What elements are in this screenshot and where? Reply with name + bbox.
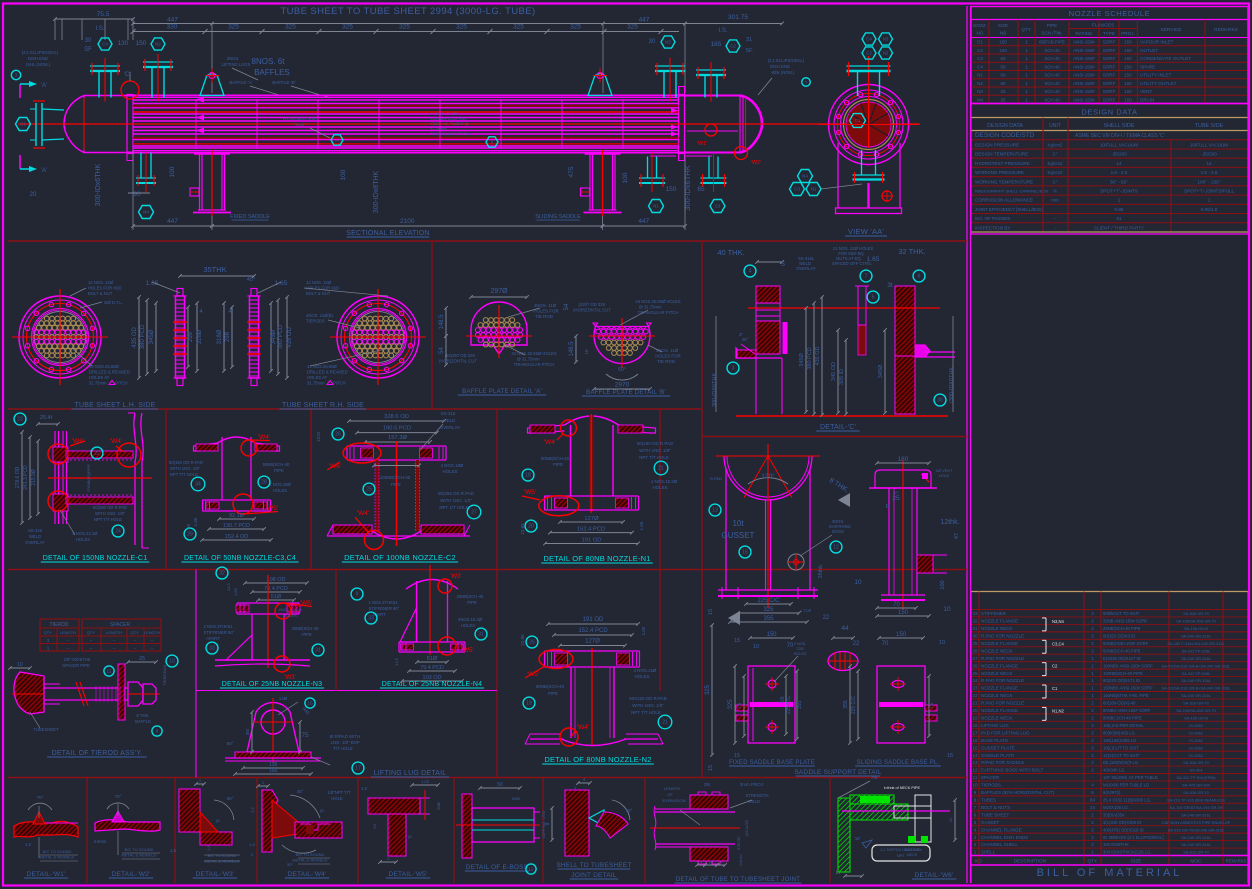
svg-text:BAFFLE-'B': BAFFLE-'B' — [272, 80, 295, 85]
svg-text:'A': 'A' — [41, 83, 47, 89]
svg-text:ANSI-150#: ANSI-150# — [1073, 81, 1095, 86]
svg-text:GASKET: GASKET — [981, 820, 1000, 825]
svg-text:TIERODS: TIERODS — [981, 783, 1001, 788]
svg-text:ID 350B IDX [2:1 ELLIPSOIDAL]: ID 350B IDX [2:1 ELLIPSOIDAL] — [1103, 835, 1164, 840]
svg-text:NO. OF PASSES: NO. OF PASSES — [975, 216, 1010, 221]
svg-text:VAPOUR INLET: VAPOUR INLET — [1140, 40, 1174, 45]
svg-text:HOLE: HOLE — [939, 474, 950, 478]
svg-text:100NB(SCH-40 PIPE: 100NB(SCH-40 PIPE — [1103, 671, 1143, 676]
svg-text:16(L)AS PER DETAIL: 16(L)AS PER DETAIL — [1103, 723, 1144, 728]
svg-text:PIPE: PIPE — [467, 600, 477, 605]
svg-text:30: 30 — [972, 634, 978, 639]
svg-text:20: 20 — [528, 524, 534, 530]
svg-text:DETAIL OF TUBE TO TUBESHEET JO: DETAIL OF TUBE TO TUBESHEET JOINT — [676, 876, 800, 883]
svg-text:OUTLET: OUTLET — [1140, 48, 1158, 53]
svg-text:QTY.: QTY. — [44, 630, 53, 635]
svg-text:'W4': 'W4' — [357, 510, 369, 517]
svg-text:4: 4 — [749, 269, 752, 275]
svg-text:UTILITY OUTLET: UTILITY OUTLET — [1140, 81, 1177, 86]
svg-text:C2: C2 — [977, 48, 983, 53]
svg-text:316Ø: 316Ø — [197, 329, 203, 344]
svg-text:TYPE: TYPE — [1103, 31, 1115, 36]
svg-text:10: 10 — [334, 138, 340, 143]
svg-text:C1: C1 — [855, 118, 861, 123]
svg-text:24: 24 — [972, 678, 978, 683]
svg-text:44 NOS.25.65Ø: 44 NOS.25.65Ø — [89, 364, 120, 369]
svg-text:HYDROTEST PRESSURE: HYDROTEST PRESSURE — [975, 161, 1030, 166]
svg-text:WORKING PRESSURE: WORKING PRESSURE — [975, 170, 1024, 175]
svg-text:150: 150 — [999, 40, 1007, 45]
svg-text:C2: C2 — [866, 51, 872, 56]
svg-text:SA-240 GR-316L: SA-240 GR-316L — [1181, 842, 1212, 847]
svg-text:25: 25 — [1000, 97, 1006, 102]
svg-text:DETAIL-'W1': DETAIL-'W1' — [27, 871, 66, 878]
svg-text:SA-312 TP 304 (ERW): SA-312 TP 304 (ERW) — [1176, 775, 1216, 780]
svg-text:R.PAD: R.PAD — [710, 476, 722, 481]
svg-text:80NB(SCH-40: 80NB(SCH-40 — [536, 684, 565, 689]
svg-text:100: 100 — [169, 166, 176, 177]
svg-text:SORF: SORF — [1103, 64, 1116, 69]
svg-text:CLIENT / THIRD PARTY: CLIENT / THIRD PARTY — [1094, 225, 1144, 230]
svg-text:DRILLED & REAMED: DRILLED & REAMED — [89, 370, 130, 375]
svg-text:20: 20 — [30, 192, 37, 198]
svg-text:'W4': 'W4' — [544, 439, 556, 446]
svg-text:1: 1 — [1025, 56, 1028, 61]
svg-text:DESIGN TEMPERATURE: DESIGN TEMPERATURE — [975, 152, 1028, 157]
svg-text:355: 355 — [763, 616, 774, 622]
svg-text:BAFFLE-'A': BAFFLE-'A' — [229, 80, 252, 85]
svg-text:6thk (NOM.): 6thk (NOM.) — [772, 70, 795, 75]
svg-text:TIEROD: TIEROD — [162, 670, 167, 685]
svg-text:1.25: 1.25 — [421, 779, 430, 784]
svg-text:14.5: 14.5 — [394, 657, 399, 666]
svg-text:22: 22 — [94, 451, 100, 457]
svg-text:PIPE: PIPE — [548, 691, 558, 696]
svg-text:ANSI-150#: ANSI-150# — [1073, 89, 1095, 94]
svg-text:OVERLAY: OVERLAY — [796, 266, 816, 271]
svg-text:HOLE: HOLE — [331, 796, 343, 801]
svg-text:SA-105/SA-516 GR-70: SA-105/SA-516 GR-70 — [1176, 619, 1216, 624]
svg-text:NOZZ.: NOZZ. — [973, 23, 987, 28]
svg-text:WORKING TEMPERATURE: WORKING TEMPERATURE — [975, 179, 1033, 184]
svg-text:30: 30 — [85, 38, 92, 44]
svg-text:2 NOS.: 2 NOS. — [794, 642, 806, 646]
svg-text:17: 17 — [355, 766, 361, 772]
svg-text:SA-240 GR-316L: SA-240 GR-316L — [1181, 678, 1212, 683]
svg-text:447: 447 — [638, 218, 649, 225]
svg-text:STIFFENER 90°: STIFFENER 90° — [369, 606, 400, 611]
svg-text:4NOS.15.3Ø: 4NOS.15.3Ø — [458, 617, 483, 622]
svg-text:SPOT+'T'-JOINTS/FULL: SPOT+'T'-JOINTS/FULL — [1184, 188, 1235, 193]
svg-text:PIPE: PIPE — [302, 632, 312, 637]
svg-text:WITH 1NO. 1/2": WITH 1NO. 1/2" — [440, 498, 472, 503]
svg-text:'W4': 'W4' — [110, 438, 122, 445]
svg-text:475: 475 — [568, 166, 575, 177]
svg-text:75: 75 — [301, 732, 309, 739]
svg-text:10: 10 — [753, 644, 759, 650]
svg-text:16: 16 — [307, 701, 313, 707]
svg-text:13: 13 — [972, 760, 978, 765]
svg-text:300-IDx6THK: 300-IDx6THK — [95, 163, 102, 206]
svg-text:C4: C4 — [102, 42, 108, 47]
svg-text:225 C/C: 225 C/C — [786, 695, 792, 714]
svg-text:8: 8 — [156, 729, 159, 735]
svg-text:SA-105/SA-516 GR-70: SA-105/SA-516 GR-70 — [1176, 708, 1216, 713]
svg-text:BOLT & NUT: BOLT & NUT — [88, 291, 113, 296]
svg-text:HYDROBOLTS/SE: HYDROBOLTS/SE — [283, 116, 317, 121]
svg-text:152.4 OD: 152.4 OD — [225, 534, 249, 540]
svg-text:325: 325 — [627, 24, 638, 31]
svg-text:8NOS. 6t: 8NOS. 6t — [252, 57, 286, 66]
svg-text:130: 130 — [118, 40, 129, 47]
svg-text:24: 24 — [1090, 805, 1096, 810]
svg-text:1: 1 — [1025, 89, 1028, 94]
svg-text:3: 3 — [720, 860, 722, 864]
svg-text:80: 80 — [1000, 81, 1006, 86]
svg-text:1: 1 — [1025, 48, 1028, 53]
svg-text:150: 150 — [898, 610, 909, 616]
svg-text:15: 15 — [972, 745, 978, 750]
svg-text:CAF NON ASBESTOS PIPE ENVELOP: CAF NON ASBESTOS PIPE ENVELOP — [1162, 820, 1231, 825]
svg-text:WITH 1NO. 1/8": WITH 1NO. 1/8" — [95, 511, 126, 516]
svg-text:215.9Ø: 215.9Ø — [31, 469, 37, 486]
svg-text:HOLES FOR: HOLES FOR — [533, 309, 558, 314]
svg-text:(HOR)ZONTAL CUT: (HOR)ZONTAL CUT — [439, 359, 477, 364]
svg-text:2 NOS.3THK51: 2 NOS.3THK51 — [203, 624, 233, 629]
svg-text:90: 90 — [133, 191, 141, 198]
svg-text:TIEROD: TIEROD — [50, 622, 69, 628]
svg-text:150: 150 — [1124, 40, 1132, 45]
svg-text:16thk.: 16thk. — [818, 563, 824, 578]
svg-text:80(258 OD R.PAD: 80(258 OD R.PAD — [438, 491, 474, 496]
svg-text:'W5': 'W5' — [266, 505, 278, 512]
svg-text:SHELL SIDE: SHELL SIDE — [1104, 123, 1135, 129]
svg-text:TUBE SHEET R.H. SIDE: TUBE SHEET R.H. SIDE — [282, 402, 364, 409]
svg-text:SCH./Thk.: SCH./Thk. — [1041, 31, 1062, 36]
svg-text:'W5': 'W5' — [524, 489, 536, 496]
svg-text:10t: 10t — [732, 519, 744, 528]
svg-text:N3: N3 — [883, 37, 889, 42]
svg-text:18: 18 — [972, 723, 978, 728]
svg-text:HOLES: HOLES — [273, 488, 287, 493]
svg-text:VIEW 'AA': VIEW 'AA' — [848, 227, 884, 236]
svg-text:1.5: 1.5 — [170, 848, 176, 853]
svg-text:R.PAD FOR NOZZLE: R.PAD FOR NOZZLE — [981, 656, 1024, 661]
svg-text:380 PCD: 380 PCD — [807, 347, 813, 369]
svg-text:51Ø: 51Ø — [271, 594, 282, 600]
svg-text:1: 1 — [1025, 73, 1028, 78]
svg-text:OVERLAY: OVERLAY — [25, 540, 45, 545]
svg-text:SA-516 GR-70: SA-516 GR-70 — [1183, 790, 1209, 795]
svg-text:SADDLE SUPPORT DETAIL: SADDLE SUPPORT DETAIL — [794, 769, 881, 776]
svg-text:HOLES FOR M20: HOLES FOR M20 — [88, 286, 122, 291]
svg-text:225 C/C: 225 C/C — [757, 598, 780, 604]
svg-text:DETAIL OF 150NB NOZZLE-C1: DETAIL OF 150NB NOZZLE-C1 — [43, 555, 148, 562]
svg-text:SA-182 F-316L/SA-240 GR-316L: SA-182 F-316L/SA-240 GR-316L — [1167, 641, 1225, 646]
svg-text:NO: NO — [977, 31, 984, 36]
svg-text:(2:1 ELLIPSOIDAL): (2:1 ELLIPSOIDAL) — [768, 58, 805, 63]
svg-text:10: 10 — [943, 606, 951, 613]
svg-text:STRENGTH: STRENGTH — [745, 793, 768, 798]
svg-text:DETAIL OF 50NB NOZZLE-C3,C4: DETAIL OF 50NB NOZZLE-C3,C4 — [184, 555, 296, 562]
svg-text:SF: SF — [745, 48, 753, 54]
svg-text:26: 26 — [972, 663, 978, 668]
svg-text:0.05 OD: 0.05 OD — [737, 836, 741, 850]
svg-text:1/8"NPT T/T: 1/8"NPT T/T — [328, 790, 351, 795]
svg-text:447: 447 — [167, 218, 178, 225]
svg-text:AØ VENT: AØ VENT — [936, 469, 953, 473]
svg-text:C2: C2 — [1052, 664, 1058, 669]
svg-text:33: 33 — [368, 616, 374, 622]
svg-text:0.85/1.0: 0.85/1.0 — [1201, 207, 1218, 212]
svg-text:31: 31 — [315, 648, 321, 654]
svg-text:C2: C2 — [730, 44, 736, 49]
svg-text:RADIOGRAPHY SHELL-CHANNEL/BOX: RADIOGRAPHY SHELL-CHANNEL/BOX — [975, 188, 1049, 193]
svg-text:SA-516 GR-70: SA-516 GR-70 — [1183, 760, 1209, 765]
svg-text:SA-106 GR-B: SA-106 GR-B — [1184, 626, 1208, 631]
svg-text:1: 1 — [1118, 198, 1121, 203]
svg-text:355: 355 — [797, 701, 803, 710]
svg-text:4 NOS.15Ø: 4 NOS.15Ø — [634, 668, 657, 673]
svg-text:21: 21 — [662, 720, 668, 726]
svg-text:12 NOS. 22Ø: 12 NOS. 22Ø — [306, 280, 332, 285]
svg-text:SF: SF — [84, 47, 92, 53]
svg-text:2970: 2970 — [615, 382, 630, 389]
svg-text:1: 1 — [1025, 40, 1028, 45]
svg-text:168: 168 — [269, 768, 278, 774]
svg-text:HOLES: HOLES — [283, 613, 297, 618]
svg-text:16: 16 — [972, 738, 978, 743]
svg-text:SYMB(60)PIPE: SYMB(60)PIPE — [86, 464, 91, 492]
svg-text:22Ø: 22Ø — [796, 647, 803, 651]
svg-text:10t: 10t — [162, 664, 167, 670]
svg-text:LIFTING LUG: LIFTING LUG — [981, 723, 1009, 728]
svg-text:325: 325 — [228, 24, 239, 31]
svg-text:TUBESHEET: TUBESHEET — [33, 727, 59, 732]
svg-text:345Ø: 345Ø — [799, 353, 805, 367]
svg-text:11: 11 — [106, 669, 111, 675]
svg-text:18: 18 — [525, 473, 531, 479]
svg-text:TRIANGULAR PITCH: TRIANGULAR PITCH — [514, 362, 555, 367]
svg-text:WITH 1NO. 1/8": WITH 1NO. 1/8" — [632, 703, 664, 708]
svg-text:DETAIL OF 80NB NOZZLE-N1: DETAIL OF 80NB NOZZLE-N1 — [543, 554, 650, 563]
svg-text:DESCRIPTION: DESCRIPTION — [1014, 859, 1047, 865]
svg-text:PIPE: PIPE — [553, 462, 563, 467]
svg-text:SA-479 GR-304: SA-479 GR-304 — [1182, 783, 1211, 788]
svg-text:NPT T/T HOLE: NPT T/T HOLE — [631, 710, 661, 715]
svg-text:M10X06 PER TABLE LG.: M10X06 PER TABLE LG. — [1103, 783, 1150, 788]
svg-text:14.5: 14.5 — [226, 582, 231, 591]
svg-text:REMARKS: REMARKS — [1226, 859, 1247, 864]
svg-text:INSPECTION BY: INSPECTION BY — [975, 225, 1010, 230]
svg-text:SORF: SORF — [1103, 97, 1116, 102]
svg-text:EXPANSION: EXPANSION — [662, 798, 685, 803]
svg-text:SS-304: SS-304 — [1190, 768, 1204, 773]
svg-text:PIPE: PIPE — [391, 482, 401, 487]
svg-text:DRILLED & REAMED: DRILLED & REAMED — [307, 370, 348, 375]
svg-text:26: 26 — [529, 640, 535, 646]
svg-text:VENT: VENT — [1140, 89, 1152, 94]
svg-text:UNIT: UNIT — [1049, 123, 1061, 129]
svg-text:SA-213 TP-316 (6M) SEAMLESS: SA-213 TP-316 (6M) SEAMLESS — [1167, 798, 1225, 803]
svg-text:DISH END: DISH END — [770, 64, 790, 69]
svg-text:SHELL: SHELL — [981, 850, 996, 855]
svg-text:150: 150 — [136, 40, 147, 47]
svg-text:SCH.40: SCH.40 — [1044, 56, 1060, 61]
svg-text:C3: C3 — [794, 187, 800, 192]
svg-text:60(190-OD R.PAD: 60(190-OD R.PAD — [637, 441, 673, 446]
svg-text:B/C TO SOUND: B/C TO SOUND — [296, 852, 325, 857]
svg-text:DISH END: DISH END — [28, 56, 48, 61]
svg-text:45°: 45° — [247, 277, 255, 283]
svg-text:10: 10 — [939, 640, 945, 646]
svg-text:24: 24 — [115, 529, 121, 535]
svg-text:t=thnk of NECK PIPE: t=thnk of NECK PIPE — [884, 786, 920, 790]
svg-text:127Ø: 127Ø — [585, 639, 600, 645]
svg-text:80: 80 — [1000, 73, 1006, 78]
svg-text:31: 31 — [478, 632, 484, 638]
svg-text:84: 84 — [1090, 798, 1096, 803]
svg-text:32: 32 — [219, 571, 225, 577]
svg-text:1.65: 1.65 — [233, 587, 238, 596]
svg-text:325: 325 — [763, 607, 774, 613]
svg-text:N3: N3 — [977, 89, 983, 94]
svg-text:R/PAD FOR SADDLE: R/PAD FOR SADDLE — [981, 760, 1024, 765]
svg-text:SPACER: SPACER — [981, 775, 1000, 780]
svg-text:TUBE SHEET L.H. SIDE: TUBE SHEET L.H. SIDE — [75, 402, 156, 409]
svg-text:5: 5 — [872, 295, 875, 301]
svg-text:C1: C1 — [977, 40, 983, 45]
svg-text:NOZZLE FLANGE: NOZZLE FLANGE — [981, 708, 1018, 713]
svg-text:Kg/cm2: Kg/cm2 — [1048, 161, 1063, 166]
svg-text:1: 1 — [1025, 97, 1028, 102]
svg-text:(D: (D — [320, 808, 324, 813]
svg-text:SA-106 GR-B: SA-106 GR-B — [1184, 716, 1208, 721]
svg-text:NOZZLE FLANGE: NOZZLE FLANGE — [981, 686, 1018, 691]
svg-text:70°: 70° — [37, 795, 44, 800]
svg-text:70: 70 — [882, 641, 889, 647]
svg-text:NOZZLE NECK: NOZZLE NECK — [981, 671, 1013, 676]
svg-text:4 NOS.19Ø: 4 NOS.19Ø — [441, 463, 464, 468]
svg-text:HOLES: HOLES — [461, 623, 475, 628]
svg-text:M30: M30 — [512, 796, 521, 801]
svg-text:SA-516 GR-70/SA-240 GR-316L: SA-516 GR-70/SA-240 GR-316L — [1168, 827, 1225, 832]
svg-text:@ 31.75mm: @ 31.75mm — [517, 357, 540, 362]
svg-text:297Ø: 297Ø — [490, 288, 508, 295]
svg-text:325: 325 — [399, 24, 410, 31]
svg-text:6: 6 — [918, 274, 921, 280]
svg-text:mm: mm — [1051, 198, 1059, 203]
svg-text:C3: C3 — [977, 56, 983, 61]
svg-text:14: 14 — [972, 753, 978, 758]
svg-text:TIE ROD: TIE ROD — [657, 359, 675, 364]
svg-text:100: 100 — [999, 48, 1007, 53]
svg-text:(SHL (NOM.): (SHL (NOM.) — [26, 62, 51, 67]
svg-text:DESIGN DATA: DESIGN DATA — [1081, 108, 1137, 117]
svg-text:190.5 PCD: 190.5 PCD — [383, 426, 411, 432]
svg-text:7: 7 — [865, 274, 868, 280]
svg-text:B/C TO SOUND: B/C TO SOUND — [125, 847, 154, 852]
svg-text:22: 22 — [972, 693, 978, 698]
svg-text:60°: 60° — [618, 367, 626, 373]
svg-text:%: % — [1053, 188, 1057, 193]
svg-text:345Ø: 345Ø — [149, 329, 155, 344]
svg-text:50: 50 — [1000, 56, 1006, 61]
svg-text:DESIGN DATA: DESIGN DATA — [987, 123, 1023, 129]
svg-text:01: 01 — [1116, 216, 1122, 221]
svg-text:92.1Ø: 92.1Ø — [229, 513, 245, 519]
svg-text:DETAIL-'W4': DETAIL-'W4' — [288, 871, 327, 878]
svg-text:27: 27 — [471, 510, 477, 516]
svg-text:STIFFENER 90°: STIFFENER 90° — [204, 630, 235, 635]
svg-text:C°: C° — [1053, 179, 1058, 184]
svg-text:1.65: 1.65 — [193, 517, 198, 526]
svg-text:150: 150 — [1124, 73, 1132, 78]
svg-text:HOLES: HOLES — [653, 485, 668, 490]
svg-text:HOLES: HOLES — [635, 674, 650, 679]
svg-text:19: 19 — [972, 716, 978, 721]
svg-text:NOZZLE NECK: NOZZLE NECK — [981, 626, 1013, 631]
svg-text:298: 298 — [225, 331, 231, 342]
svg-text:447: 447 — [167, 17, 178, 24]
svg-text:@ 31.75mm: @ 31.75mm — [639, 305, 662, 310]
svg-text:WITH 1NO. 1/8": WITH 1NO. 1/8" — [170, 466, 201, 471]
svg-text:13.5t: 13.5t — [316, 431, 321, 442]
svg-text:10/FULL VACUUM: 10/FULL VACUUM — [1100, 142, 1138, 147]
svg-text:1: 1 — [1208, 198, 1211, 203]
svg-text:15: 15 — [742, 550, 748, 556]
svg-text:'W4': 'W4' — [577, 724, 589, 731]
svg-text:SS-316: SS-316 — [441, 411, 456, 416]
svg-text:3.5mm: 3.5mm — [94, 839, 107, 844]
svg-text:70°: 70° — [115, 794, 122, 799]
svg-text:278.6 OD: 278.6 OD — [15, 466, 21, 488]
svg-text:3": 3" — [739, 332, 744, 337]
svg-text:100: 100 — [622, 172, 629, 183]
svg-text:C4: C4 — [977, 64, 983, 69]
svg-text:345Ø: 345Ø — [271, 329, 277, 344]
svg-text:NB: NB — [1000, 31, 1006, 36]
svg-text:30° - 50°: 30° - 50° — [1110, 179, 1128, 184]
svg-text:MOC: MOC — [1190, 859, 1202, 865]
svg-text:31: 31 — [972, 626, 978, 631]
svg-text:100: 100 — [340, 169, 347, 180]
svg-text:150: 150 — [666, 186, 677, 193]
svg-text:15°: 15° — [626, 808, 633, 813]
svg-text:DETAIL-'W5': DETAIL-'W5' — [389, 871, 428, 878]
svg-text:75: 75 — [737, 703, 743, 709]
svg-text:100NBX ANSI-150# SORF: 100NBX ANSI-150# SORF — [1103, 663, 1153, 668]
svg-text:RATING: RATING — [1075, 31, 1092, 36]
svg-text:3(L)345 OD(X305 ID: 3(L)345 OD(X305 ID — [1103, 820, 1141, 825]
svg-text:OVERLAY: OVERLAY — [440, 425, 460, 430]
svg-text:4NOS. 11Ø: 4NOS. 11Ø — [534, 303, 557, 308]
svg-text:447: 447 — [639, 17, 650, 24]
svg-text:DETAIL-'W3': DETAIL-'W3' — [196, 871, 235, 878]
svg-text:25: 25 — [366, 487, 372, 493]
svg-text:325: 325 — [456, 24, 467, 31]
svg-text:150: 150 — [1124, 56, 1132, 61]
svg-text:25: 25 — [139, 656, 145, 662]
svg-text:QTY.: QTY. — [1088, 859, 1098, 864]
svg-text:165: 165 — [711, 41, 722, 48]
svg-text:23.88: 23.88 — [520, 634, 525, 646]
svg-text:SA-312 TP-316L: SA-312 TP-316L — [1182, 671, 1212, 676]
svg-text:DETAIL OF 80NB NOZZLE-N2: DETAIL OF 80NB NOZZLE-N2 — [544, 755, 651, 764]
svg-text:325: 325 — [342, 24, 353, 31]
svg-text:380 PCD: 380 PCD — [140, 324, 146, 349]
svg-text:60(150 OD R.PAD: 60(150 OD R.PAD — [169, 460, 203, 465]
